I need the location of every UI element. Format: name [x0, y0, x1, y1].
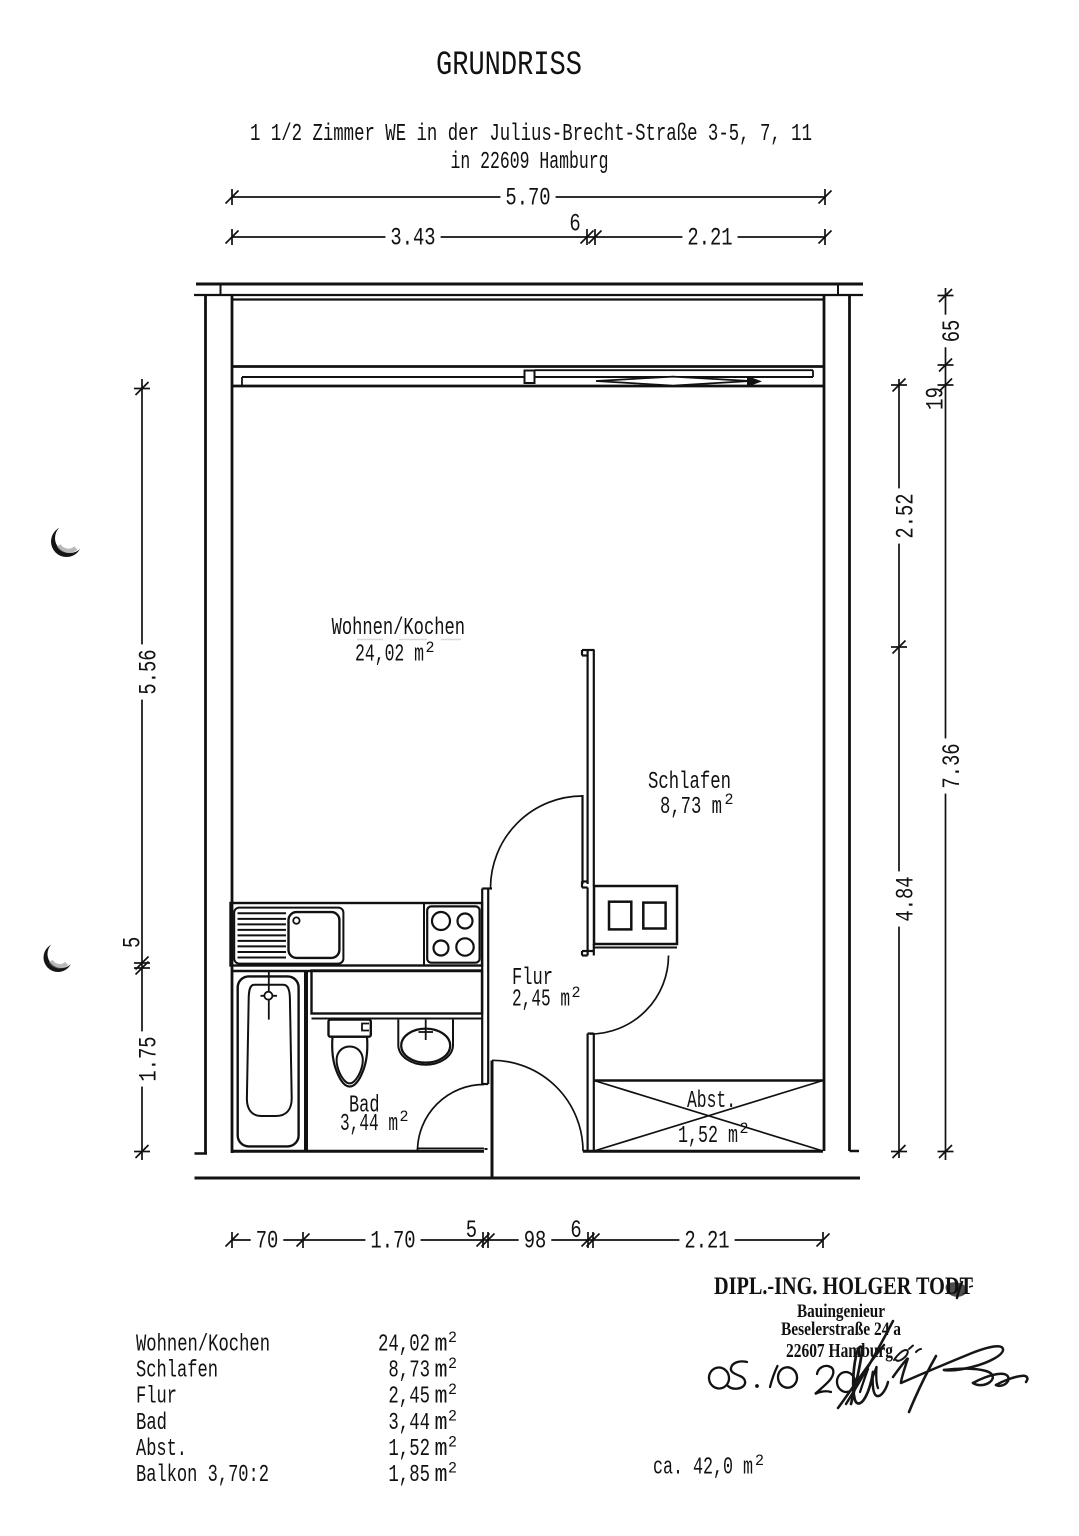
svg-text:2: 2 [572, 984, 581, 1002]
svg-text:2: 2 [400, 1108, 409, 1126]
svg-text:2: 2 [448, 1407, 457, 1425]
svg-text:24,02: 24,02 [378, 1332, 430, 1359]
svg-text:3,44 m: 3,44 m [340, 1111, 398, 1138]
svg-text:m: m [435, 1462, 448, 1489]
svg-text:19: 19 [922, 387, 951, 410]
svg-text:1.70: 1.70 [370, 1227, 415, 1256]
svg-text:4.84: 4.84 [892, 876, 921, 921]
svg-text:1 1/2 Zimmer WE in der Julius-: 1 1/2 Zimmer WE in der Julius-Brecht-Str… [250, 121, 812, 148]
svg-text:1,52 m: 1,52 m [678, 1123, 738, 1150]
svg-text:1.75: 1.75 [135, 1036, 164, 1081]
svg-text:Schlafen: Schlafen [648, 769, 731, 796]
svg-text:2: 2 [448, 1355, 457, 1373]
svg-text:Bad: Bad [136, 1410, 167, 1437]
svg-text:8,73: 8,73 [388, 1358, 430, 1385]
svg-text:ca. 42,0 m: ca. 42,0 m [653, 1455, 753, 1482]
svg-text:2: 2 [448, 1329, 457, 1347]
svg-text:70: 70 [256, 1227, 279, 1256]
svg-text:Flur: Flur [136, 1384, 177, 1411]
svg-text:2.21: 2.21 [684, 1227, 729, 1256]
svg-text:2,45 m: 2,45 m [512, 987, 570, 1014]
svg-text:Balkon 3,70:2: Balkon 3,70:2 [136, 1462, 269, 1489]
svg-text:m: m [435, 1410, 448, 1437]
svg-text:5.70: 5.70 [505, 184, 550, 213]
svg-text:2: 2 [740, 1120, 749, 1138]
svg-text:GRUNDRISS: GRUNDRISS [436, 47, 582, 85]
svg-text:1,85: 1,85 [388, 1462, 430, 1489]
svg-text:6: 6 [570, 1216, 581, 1245]
svg-text:m: m [435, 1358, 448, 1385]
svg-text:5: 5 [119, 937, 148, 948]
svg-text:2: 2 [448, 1433, 457, 1451]
svg-text:2: 2 [448, 1381, 457, 1399]
svg-text:5: 5 [466, 1216, 477, 1245]
svg-text:98: 98 [524, 1227, 547, 1256]
svg-text:2.21: 2.21 [687, 224, 732, 253]
svg-text:DIPL.-ING. HOLGER TODT: DIPL.-ING. HOLGER TODT [714, 1273, 973, 1300]
svg-text:6: 6 [569, 210, 580, 239]
svg-text:5.56: 5.56 [135, 649, 164, 694]
svg-text:2,45: 2,45 [388, 1384, 430, 1411]
svg-text:2: 2 [755, 1452, 764, 1470]
svg-text:2.52: 2.52 [892, 493, 921, 538]
svg-text:Wohnen/Kochen: Wohnen/Kochen [136, 1332, 270, 1359]
svg-text:2: 2 [426, 639, 435, 657]
svg-text:24,02 m: 24,02 m [355, 642, 424, 669]
svg-text:Abst.: Abst. [136, 1436, 187, 1463]
svg-text:2: 2 [725, 791, 734, 809]
svg-text:Schlafen: Schlafen [136, 1358, 218, 1385]
svg-text:in 22609 Hamburg: in 22609 Hamburg [451, 149, 609, 176]
svg-text:m: m [435, 1384, 448, 1411]
svg-text:7.36: 7.36 [938, 743, 967, 788]
svg-text:Wohnen/Kochen: Wohnen/Kochen [332, 615, 465, 642]
svg-text:3,44: 3,44 [388, 1410, 430, 1437]
svg-text:m: m [435, 1436, 448, 1463]
svg-text:8,73 m: 8,73 m [660, 794, 722, 821]
svg-text:3.43: 3.43 [390, 224, 435, 253]
svg-text:m: m [435, 1332, 448, 1359]
svg-text:65: 65 [938, 320, 967, 343]
svg-text:1,52: 1,52 [388, 1436, 430, 1463]
svg-text:Abst.: Abst. [687, 1088, 736, 1115]
svg-text:2: 2 [448, 1460, 457, 1478]
